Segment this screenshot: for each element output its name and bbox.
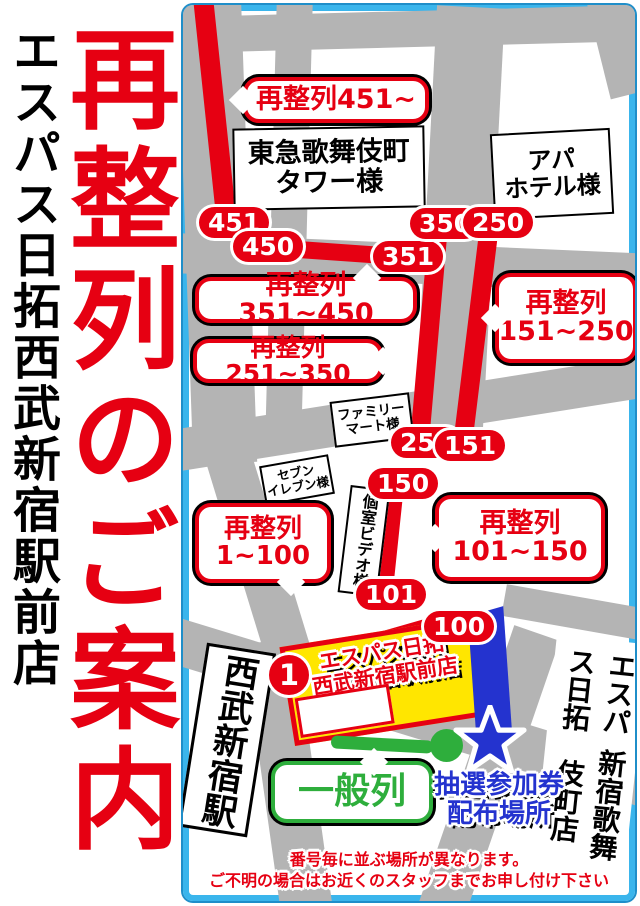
building-label: タワー様 (275, 166, 384, 199)
callout-label: 151~250 (498, 318, 633, 346)
callout-label: 再整列451~ (256, 86, 416, 114)
queue-marker-450: 450 (233, 231, 303, 262)
callout-label: 再整列351~450 (199, 272, 413, 329)
poster-title-vertical: 再整列のご案内 (60, 22, 170, 862)
queue-marker-250: 250 (463, 207, 533, 238)
callout-requeue-101-150: 再整列 101~150 (435, 495, 605, 581)
callout-label: 再整列 (526, 290, 607, 318)
queue-marker-151: 151 (435, 430, 505, 461)
queue-marker-101: 101 (356, 579, 426, 610)
store-entrance-area (295, 684, 395, 738)
building-tokyu-kabukicho-tower: 東急歌舞伎町 タワー様 (232, 125, 425, 210)
queue-guide-poster: エスパス日拓西武新宿駅前店 再整列のご案内 東急歌舞伎町 タワー様 アパ (0, 0, 640, 906)
lottery-spot-star-icon (453, 705, 527, 773)
notice-line1: 番号毎に並ぶ場所が異なります。 (290, 850, 528, 869)
building-label: 東急歌舞伎町 (247, 135, 410, 169)
callout-label: 再整列 (480, 510, 561, 538)
callout-requeue-251-350: 再整列251~350 (193, 339, 383, 383)
store-name-vertical: エスパス日拓西武新宿駅前店 (8, 26, 56, 689)
callout-requeue-351-450: 再整列351~450 (195, 277, 417, 323)
building-seibu-shinjuku-station: 西武新宿駅 (183, 643, 276, 838)
notice-line2: ご不明の場合はお近くのスタッフまでお申し付け下さい (209, 871, 609, 890)
building-label: アパ (527, 145, 576, 175)
street (587, 5, 635, 99)
building-seven-eleven: セブン イレブン様 (259, 454, 335, 506)
callout-label: 再整列 (224, 516, 302, 543)
lottery-label-line2: 配布場所 (447, 799, 551, 829)
callout-requeue-451-up: 再整列451~ (243, 77, 429, 123)
bubble-tail (421, 524, 449, 552)
guide-map: 東急歌舞伎町 タワー様 アパ ホテル様 ファミリー マート様 セブン イレブン様… (183, 5, 635, 901)
building-label: ホテル様 (504, 170, 601, 203)
callout-label: 一般列 (298, 773, 406, 811)
lottery-ticket-distribution-label: 抽選参加券 配布場所 (408, 771, 590, 829)
building-label: エスパス日拓 (552, 635, 635, 746)
callout-requeue-1-100: 再整列 1~100 (195, 503, 331, 583)
callout-label: 1~100 (216, 543, 310, 570)
lottery-label-line1: 抽選参加券 (434, 770, 564, 800)
queue-marker-351: 351 (373, 241, 443, 272)
bottom-notice: 番号毎に並ぶ場所が異なります。 ご不明の場合はお近くのスタッフまでお申し付け下さ… (183, 850, 635, 892)
queue-marker-100: 100 (424, 611, 494, 642)
callout-requeue-151-250: 再整列 151~250 (495, 273, 635, 363)
queue-marker-150: 150 (368, 468, 438, 499)
callout-label: 再整列251~350 (197, 335, 379, 388)
queue-marker-1: 1 (269, 655, 309, 695)
callout-label: 101~150 (452, 538, 587, 566)
street (183, 5, 635, 53)
